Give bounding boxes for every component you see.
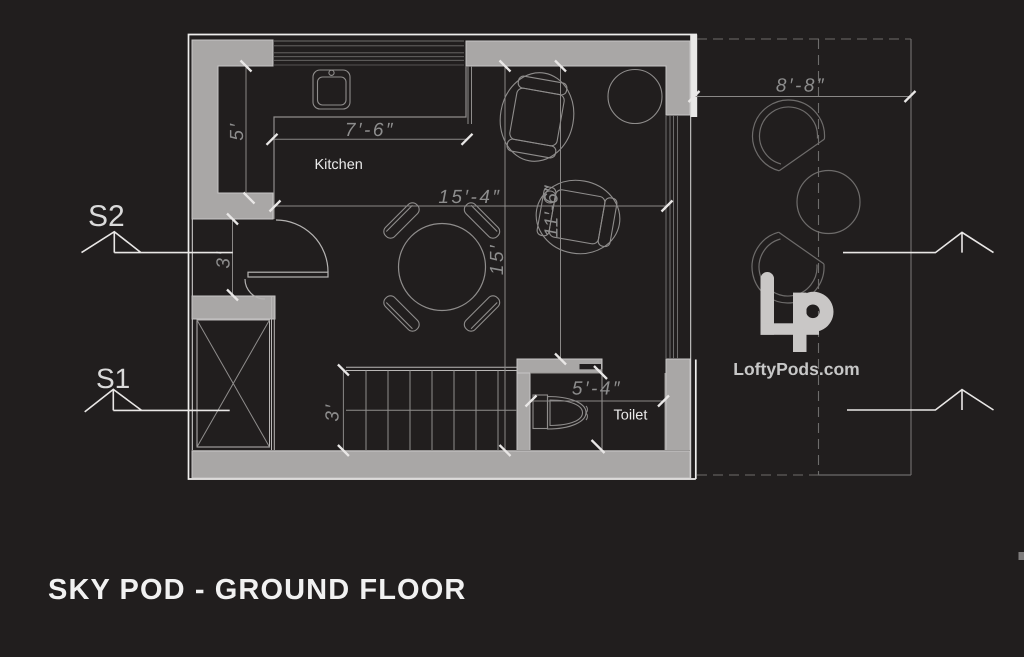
- svg-text:Toilet: Toilet: [614, 408, 648, 424]
- svg-text:S1: S1: [96, 363, 130, 394]
- svg-text:15′: 15′: [487, 243, 508, 275]
- svg-text:Kitchen: Kitchen: [315, 157, 363, 173]
- svg-text:S2: S2: [88, 200, 125, 233]
- svg-text:3′: 3′: [323, 402, 344, 421]
- svg-text:5′-4″: 5′-4″: [572, 379, 622, 400]
- svg-text:8′-8″: 8′-8″: [776, 76, 826, 97]
- svg-text:15′-4″: 15′-4″: [438, 187, 501, 208]
- svg-text:LoftyPods.com: LoftyPods.com: [733, 359, 859, 379]
- svg-text:SKY POD - GROUND FLOOR: SKY POD - GROUND FLOOR: [48, 574, 466, 606]
- svg-text:5′: 5′: [227, 121, 248, 140]
- svg-text:7′-6″: 7′-6″: [345, 120, 395, 141]
- svg-text:11′-6″: 11′-6″: [542, 184, 563, 237]
